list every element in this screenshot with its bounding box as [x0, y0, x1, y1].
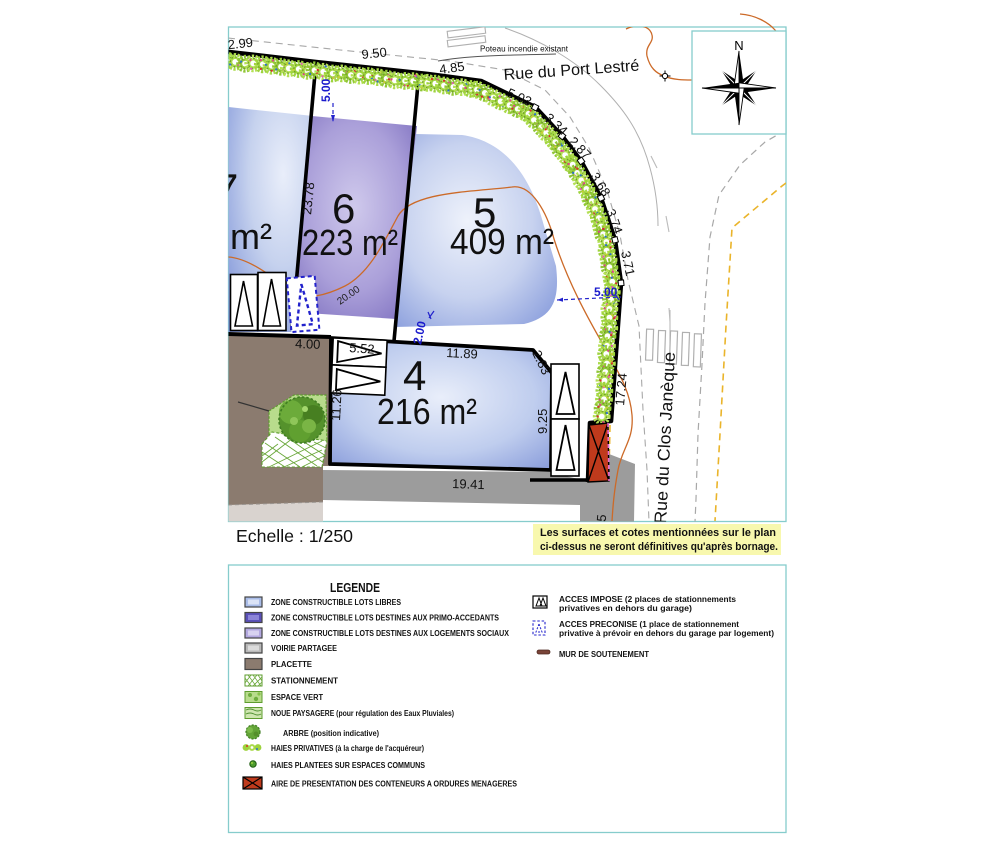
svg-text:ZONE CONSTRUCTIBLE LOTS DESTIN: ZONE CONSTRUCTIBLE LOTS DESTINES AUX PRI…	[271, 614, 500, 623]
svg-text:17.24: 17.24	[612, 373, 630, 407]
svg-text:Les surfaces et cotes mentionn: Les surfaces et cotes mentionnées sur le…	[540, 527, 776, 539]
svg-text:Poteau incendie existant: Poteau incendie existant	[480, 44, 569, 54]
svg-text:216 m²: 216 m²	[377, 391, 477, 432]
svg-text:9.50: 9.50	[361, 44, 388, 62]
svg-text:7: 7	[215, 165, 238, 212]
svg-text:ACCES IMPOSE (2 places de stat: ACCES IMPOSE (2 places de stationnements	[559, 595, 737, 604]
svg-text:MUR DE SOUTENEMENT: MUR DE SOUTENEMENT	[559, 650, 649, 659]
svg-text:m²: m²	[230, 216, 272, 257]
svg-text:ci-dessus ne seront définitive: ci-dessus ne seront définitives qu'après…	[540, 541, 778, 553]
svg-text:privative à prévoir en dehors: privative à prévoir en dehors du garage …	[559, 629, 774, 638]
svg-text:ACCES PRECONISE (1 place de st: ACCES PRECONISE (1 place de stationnemen…	[559, 620, 739, 629]
svg-text:AIRE DE PRESENTATION DES CONTE: AIRE DE PRESENTATION DES CONTENEURS A OR…	[271, 780, 518, 789]
svg-text:ZONE CONSTRUCTIBLE LOTS LIBRES: ZONE CONSTRUCTIBLE LOTS LIBRES	[271, 598, 402, 607]
svg-text:N: N	[734, 38, 743, 53]
svg-text:HAIES PLANTEES SUR ESPACES COM: HAIES PLANTEES SUR ESPACES COMMUNS	[271, 761, 426, 770]
svg-text:ZONE CONSTRUCTIBLE LOTS DESTIN: ZONE CONSTRUCTIBLE LOTS DESTINES AUX LOG…	[271, 629, 510, 638]
svg-text:privatives en dehors du garage: privatives en dehors du garage)	[559, 604, 692, 613]
svg-text:Echelle : 1/250: Echelle : 1/250	[236, 526, 353, 546]
svg-text:5.52: 5.52	[349, 340, 375, 357]
svg-text:11.26: 11.26	[328, 389, 345, 421]
svg-text:19.41: 19.41	[452, 476, 485, 492]
svg-text:ESPACE VERT: ESPACE VERT	[271, 693, 323, 702]
svg-text:NOUE PAYSAGERE (pour régulatio: NOUE PAYSAGERE (pour régulation des Eaux…	[271, 709, 454, 718]
svg-text:ARBRE (position indicative): ARBRE (position indicative)	[283, 729, 379, 738]
svg-text:HAIES PRIVATIVES (à la charge: HAIES PRIVATIVES (à la charge de l'acqué…	[271, 744, 424, 753]
svg-text:PLACETTE: PLACETTE	[271, 660, 313, 669]
svg-text:5.00: 5.00	[319, 78, 333, 102]
svg-text:VOIRIE PARTAGEE: VOIRIE PARTAGEE	[271, 644, 338, 653]
svg-text:409 m²: 409 m²	[450, 221, 554, 262]
svg-text:223 m²: 223 m²	[302, 222, 398, 263]
svg-text:4.00: 4.00	[295, 336, 321, 352]
svg-text:LEGENDE: LEGENDE	[330, 580, 380, 595]
svg-text:9.25: 9.25	[535, 409, 550, 434]
svg-text:11.89: 11.89	[446, 345, 478, 362]
svg-text:STATIONNEMENT: STATIONNEMENT	[271, 677, 338, 686]
